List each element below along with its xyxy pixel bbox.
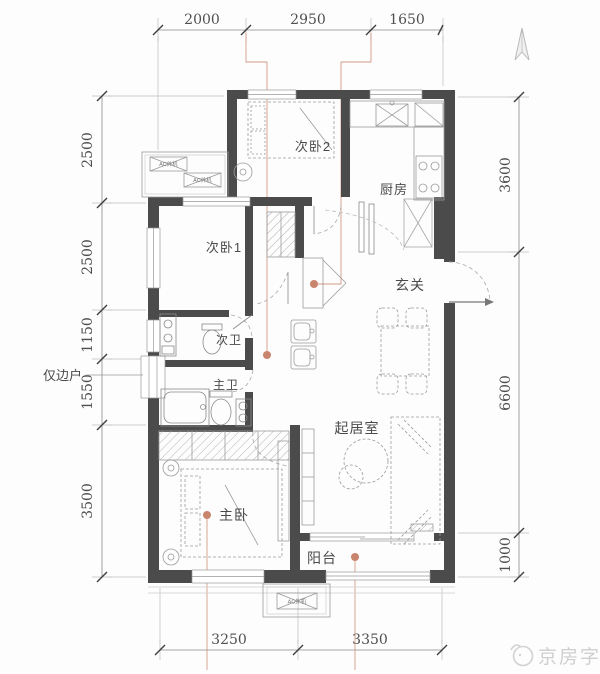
callout-dot-balcony [351, 553, 359, 561]
foyer-shoe-cabinet [404, 199, 432, 247]
dim-top-1: 2000 [184, 12, 220, 28]
ac-unit-box-1: AC外机 [150, 157, 187, 171]
dim-left-3: 1150 [80, 317, 96, 353]
laundry-pair [291, 320, 316, 369]
master-wardrobe [159, 431, 289, 460]
walls [148, 90, 455, 583]
dim-left-2: 2500 [80, 239, 96, 275]
dim-right-1: 3600 [498, 157, 514, 193]
dim-right-3: 1000 [498, 537, 514, 573]
ac-platform-bottom: AC外机 [263, 584, 330, 617]
dim-bottom-1: 3250 [211, 632, 247, 648]
living-coffee-table [339, 439, 388, 489]
callout-dot-hallway [263, 351, 271, 359]
ac-unit-label-1: AC外机 [159, 160, 178, 168]
living-tv-console [302, 429, 314, 525]
ac-unit-box-2: AC外机 [184, 173, 221, 187]
north-arrow-icon [515, 28, 529, 60]
bath1-toilet [210, 391, 232, 425]
room-living [302, 417, 440, 544]
watermark-logo-icon [511, 645, 533, 665]
dimension-top: 2000 2950 1650 [153, 12, 443, 150]
label-foyer: 玄关 [395, 277, 425, 293]
kitchen-stove [416, 156, 442, 198]
exterior-sill-lines [148, 587, 455, 593]
room-bath1 [161, 370, 253, 426]
floorplan-svg: 2000 2950 1650 2500 2500 1150 1550 3500 … [0, 0, 600, 674]
ac-unit-label-3: AC外机 [288, 598, 307, 606]
window-bedroom2-north [248, 90, 296, 99]
dim-top-3: 1650 [389, 12, 425, 28]
callout-dot-master [203, 511, 211, 519]
label-balcony: 阳台 [307, 550, 337, 566]
foyer-coat-closet [267, 212, 295, 257]
dim-left-5: 3500 [80, 483, 96, 519]
dim-top-2: 2950 [290, 12, 326, 28]
watermark-text: 京房字 [538, 646, 600, 668]
dining-set [377, 308, 429, 394]
dim-right-2: 6600 [498, 375, 514, 411]
bath1-tub [161, 389, 209, 426]
window-bedroom1-west [147, 228, 160, 288]
window-master-south [192, 570, 264, 583]
dimension-right: 3600 6600 1000 [458, 92, 529, 582]
kitchen-fridge [415, 103, 443, 126]
callout-dot-foyer-cabinet [310, 280, 318, 288]
ac-unit-label-2: AC外机 [193, 176, 212, 184]
dim-bottom-2: 3350 [352, 632, 388, 648]
label-living: 起居室 [335, 420, 380, 436]
label-bedroom1: 次卧1 [206, 240, 242, 255]
room-master [159, 431, 289, 565]
ac-unit-box-3: AC外机 [277, 593, 317, 609]
watermark: 京房字 [511, 645, 600, 668]
foyer-tall-cabinet [303, 258, 346, 308]
edge-unit-text: 仅边户 [43, 368, 82, 383]
ac-platform-topleft: AC外机 AC外机 [142, 152, 228, 197]
label-bath1: 主卫 [213, 378, 239, 392]
label-master: 主卧 [219, 507, 249, 523]
window-bath2-west [147, 320, 160, 352]
entry-door [449, 262, 494, 306]
label-kitchen: 厨房 [380, 182, 408, 197]
label-bedroom2: 次卧2 [295, 139, 331, 154]
kitchen-sink [376, 101, 408, 126]
window-balcony-south-glass [326, 572, 430, 580]
floorplan-canvas: 2000 2950 1650 2500 2500 1150 1550 3500 … [0, 0, 600, 674]
windows [141, 90, 430, 583]
window-bedroom1-north [183, 197, 250, 206]
dim-left-1: 2500 [80, 132, 96, 168]
dim-left-4: 1550 [80, 374, 96, 410]
window-kitchen-north [370, 90, 422, 99]
label-bath2: 次卫 [216, 333, 242, 347]
foyer-pocket-door [359, 202, 374, 254]
balcony-doormat [411, 524, 433, 531]
